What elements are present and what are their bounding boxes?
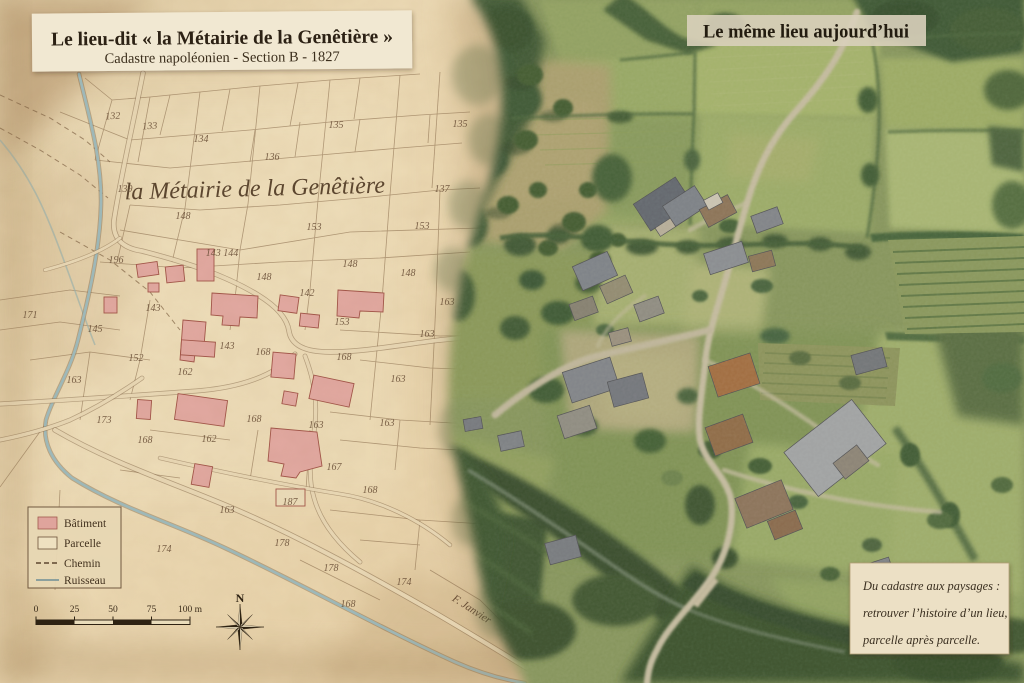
svg-text:Ruisseau: Ruisseau: [64, 575, 106, 587]
svg-text:100 m: 100 m: [178, 605, 203, 615]
svg-text:0: 0: [34, 605, 39, 615]
svg-text:parcelle après parcelle.: parcelle après parcelle.: [862, 633, 980, 647]
svg-text:Bâtiment: Bâtiment: [64, 518, 107, 530]
svg-text:75: 75: [147, 605, 157, 615]
svg-text:Parcelle: Parcelle: [64, 538, 101, 550]
svg-text:50: 50: [108, 605, 118, 615]
svg-text:Le même lieu aujourd’hui: Le même lieu aujourd’hui: [703, 23, 909, 43]
svg-text:N: N: [236, 591, 245, 605]
svg-text:retrouver l’histoire d’un lieu: retrouver l’histoire d’un lieu,: [863, 606, 1008, 620]
svg-text:Cadastre napoléonien - Section: Cadastre napoléonien - Section B - 1827: [104, 49, 339, 67]
svg-text:Le lieu-dit « la Métairie de l: Le lieu-dit « la Métairie de la Genêtièr…: [51, 27, 393, 51]
svg-text:Du cadastre aux paysages :: Du cadastre aux paysages :: [862, 579, 1000, 593]
svg-text:Chemin: Chemin: [64, 558, 101, 570]
svg-text:25: 25: [70, 605, 80, 615]
